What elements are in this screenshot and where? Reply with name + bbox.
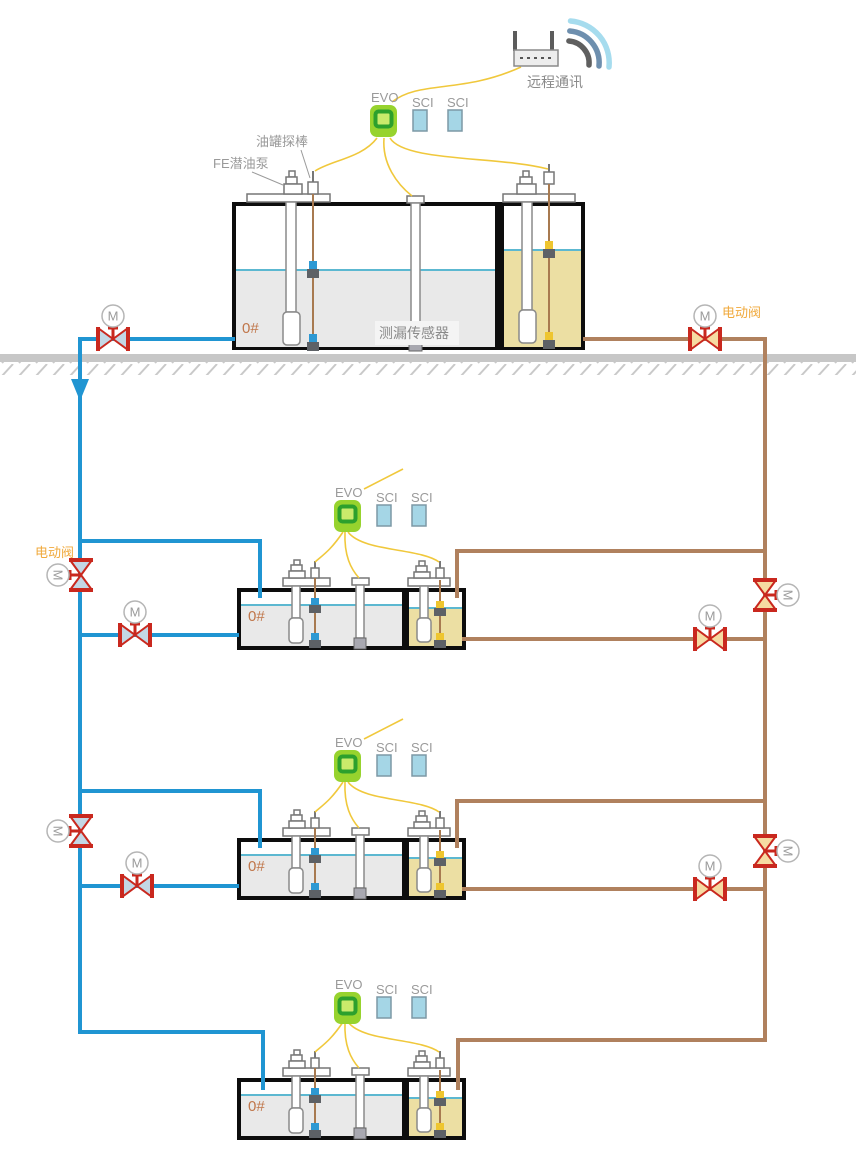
submersible-pump-label: FE潜油泵: [213, 156, 269, 171]
tank-station-4: [239, 1050, 464, 1139]
motor-valve-diesel-main-3: M: [47, 816, 93, 846]
pump-head: [284, 184, 302, 194]
tank-divider: [495, 206, 504, 346]
pump-column: [522, 202, 532, 310]
motor-valve-diesel-main-2: M: [47, 560, 93, 590]
manhole-flange: [503, 194, 575, 202]
probe-head: [308, 182, 318, 194]
tank-station-2: [239, 560, 464, 649]
tank-station-3: [239, 810, 464, 899]
pump-body: [519, 310, 536, 343]
uplink-wire-station-2: [364, 469, 403, 489]
electric-valve-label-left: 电动阀: [35, 545, 74, 560]
pump-body: [283, 312, 300, 345]
fuel-grade-label: 0#: [242, 320, 259, 337]
evo-cluster-station-4: [334, 977, 433, 1024]
motor-valve-gasoline-branch-2: M: [695, 605, 725, 651]
motor-letter: M: [700, 309, 711, 324]
manhole-flange: [247, 194, 330, 202]
motor-valve-diesel-surface: M: [98, 305, 128, 351]
gasoline-liquid: [504, 250, 581, 347]
ground-line: [0, 354, 856, 375]
motor-letter: M: [108, 309, 119, 324]
router-antenna: [513, 31, 517, 51]
tank-probe-label: 油罐探棒: [256, 134, 308, 149]
diagram-canvas: EVO SCI SCI 0#: [0, 0, 856, 1154]
motor-letter: M: [781, 590, 796, 601]
electric-valve-label-right: 电动阀: [722, 305, 761, 320]
uplink-wire-station-3: [364, 719, 403, 739]
motor-valve-gasoline-surface: M: [690, 305, 720, 351]
fuel-station-piping-diagram: EVO SCI SCI 0#: [0, 0, 856, 1154]
evo-cluster-station-2: [334, 485, 433, 532]
motor-valve-diesel-branch-3: M: [122, 852, 152, 898]
pump-callout-line: [252, 172, 283, 185]
motor-letter: M: [51, 826, 66, 837]
pump-head: [517, 184, 536, 194]
remote-comm-label: 远程通讯: [527, 74, 583, 90]
motor-letter: M: [132, 856, 143, 871]
svg-text:测漏传感器: 测漏传感器: [379, 325, 449, 341]
motor-valve-diesel-branch-2: M: [120, 601, 150, 647]
signal-wires-station-1: [315, 67, 548, 196]
motor-letter: M: [781, 846, 796, 857]
gasoline-pipeline: [457, 339, 765, 1090]
router-antenna: [550, 31, 554, 51]
motor-letter: M: [705, 609, 716, 624]
wifi-signal-icon: [569, 21, 609, 67]
motor-letter: M: [705, 859, 716, 874]
pump-column: [286, 202, 296, 312]
wifi-router: [513, 31, 558, 66]
diesel-pipeline: [71, 339, 263, 1090]
probe-callout-line: [301, 150, 310, 178]
motor-valve-gasoline-main-2: M: [753, 580, 799, 610]
probe-head: [544, 172, 554, 184]
evo-cluster-station-1: [370, 90, 469, 137]
motor-letter: M: [51, 570, 66, 581]
motor-valve-gasoline-branch-3: M: [695, 855, 725, 901]
motor-valve-gasoline-main-3: M: [753, 836, 799, 866]
flow-arrow-icon: [71, 379, 89, 401]
leak-sensor-label: 测漏传感器: [375, 321, 459, 345]
leak-sensor-well: [411, 203, 420, 338]
evo-cluster-station-3: [334, 735, 433, 782]
motor-letter: M: [130, 605, 141, 620]
